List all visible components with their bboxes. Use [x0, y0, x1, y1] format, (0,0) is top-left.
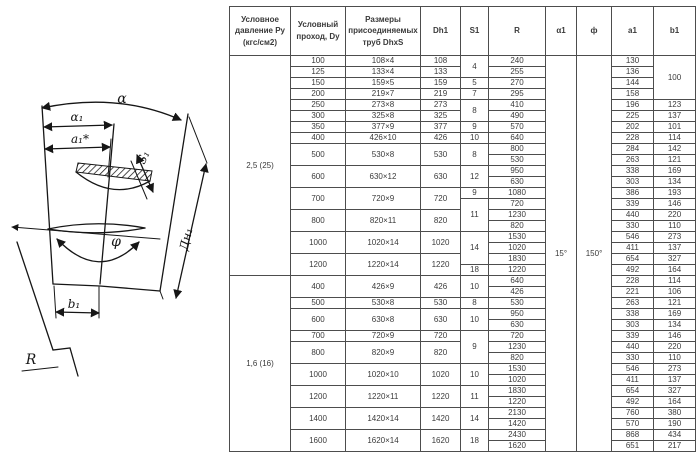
table-row: 16001620×141620182430868434	[230, 430, 696, 441]
table-cell: 1220	[421, 386, 461, 408]
table-cell: 9	[461, 331, 489, 364]
column-header: α1	[546, 7, 577, 56]
table-row: 500530×85308530263121	[230, 298, 696, 309]
table-cell: 630	[421, 309, 461, 331]
table-cell: 1020×10	[346, 364, 421, 386]
table-cell: 8	[461, 298, 489, 309]
table-row: 600630×863010950338169	[230, 309, 696, 320]
table-cell: 1000	[291, 232, 346, 254]
table-row: 600630×1263012950338169	[230, 166, 696, 177]
pipe-bend-diagram: α α₁ a₁* S₁ Дн₁ φ b₁ R	[0, 0, 228, 469]
table-row: 12001220×111220111830654327	[230, 386, 696, 397]
table-cell: 410	[489, 100, 546, 111]
table-cell: 5	[461, 78, 489, 89]
table-cell: 377×9	[346, 122, 421, 133]
table-cell: 202	[612, 122, 654, 133]
b1-dimension-line	[56, 312, 99, 313]
table-cell: 110	[654, 221, 696, 232]
column-header: Dh1	[421, 7, 461, 56]
table-cell: 121	[654, 298, 696, 309]
table-cell: 11	[461, 199, 489, 232]
table-row: 10001020×101020101530546273	[230, 364, 696, 375]
table-row: 150159×51595270144	[230, 78, 696, 89]
table-cell: 1230	[489, 342, 546, 353]
table-cell: 11	[461, 386, 489, 408]
table-cell: 133	[421, 67, 461, 78]
column-header: Размеры присоединяемых труб DhxS	[346, 7, 421, 56]
table-cell: 492	[612, 265, 654, 276]
table-cell: 350	[291, 122, 346, 133]
a1-star-label: a₁*	[71, 132, 89, 146]
table-cell: 820	[421, 210, 461, 232]
table-cell: 123	[654, 100, 696, 111]
table-cell: 250	[291, 100, 346, 111]
table-cell: 1020	[421, 364, 461, 386]
document-page: α α₁ a₁* S₁ Дн₁ φ b₁ R Условное давление…	[0, 0, 700, 469]
table-cell: 146	[654, 331, 696, 342]
table-cell: 426×9	[346, 276, 421, 298]
table-cell: 530	[421, 298, 461, 309]
table-cell: 1020	[489, 243, 546, 254]
table-cell: 1830	[489, 386, 546, 397]
table-cell: 18	[461, 430, 489, 452]
table-cell: 125	[291, 67, 346, 78]
table-cell: 219×7	[346, 89, 421, 100]
alpha1-dimension-line	[44, 125, 112, 127]
table-cell: 9	[461, 188, 489, 199]
phi-label: φ	[111, 234, 121, 250]
table-cell: 228	[612, 133, 654, 144]
table-cell: 10	[461, 133, 489, 144]
table-cell: 7	[461, 89, 489, 100]
table-cell: 8	[461, 144, 489, 166]
table-cell: 492	[612, 397, 654, 408]
table-cell: 640	[489, 276, 546, 287]
table-cell: 1220	[489, 265, 546, 276]
table-cell: 630	[489, 177, 546, 188]
table-cell: 1420	[421, 408, 461, 430]
table-cell: 327	[654, 254, 696, 265]
table-cell: 100	[654, 56, 696, 100]
table-cell: 273	[654, 364, 696, 375]
table-cell: 164	[654, 265, 696, 276]
table-cell: 263	[612, 298, 654, 309]
table-cell: 303	[612, 320, 654, 331]
bottom-face-arc-top	[48, 224, 145, 229]
table-cell: 134	[654, 320, 696, 331]
table-cell: 1020×14	[346, 232, 421, 254]
table-cell: 1420×14	[346, 408, 421, 430]
table-cell: 2430	[489, 430, 546, 441]
table-cell: 330	[612, 353, 654, 364]
table-cell: 2,5 (25)	[230, 56, 291, 276]
table-cell: 1220	[421, 254, 461, 276]
table-cell: 240	[489, 56, 546, 67]
table-cell: 1620×14	[346, 430, 421, 452]
table-cell: 490	[489, 111, 546, 122]
table-cell: 300	[291, 111, 346, 122]
r-label: R	[25, 352, 37, 368]
table-cell: 190	[654, 419, 696, 430]
table-cell: 14	[461, 408, 489, 430]
table-cell: 720×9	[346, 331, 421, 342]
table-cell: 8	[461, 100, 489, 122]
table-cell: 142	[654, 144, 696, 155]
table-cell: 400	[291, 276, 346, 298]
table-row: 200219×72197295158	[230, 89, 696, 100]
table-cell: 720	[489, 199, 546, 210]
table-cell: 101	[654, 122, 696, 133]
table-cell: 530×8	[346, 298, 421, 309]
table-row: 400426×1042610640228114	[230, 133, 696, 144]
table-cell: 339	[612, 331, 654, 342]
table-cell: 169	[654, 166, 696, 177]
table-cell: 654	[612, 386, 654, 397]
table-cell: 159	[421, 78, 461, 89]
table-cell: 700	[291, 188, 346, 210]
alpha1-label: α₁	[71, 110, 84, 124]
table-cell: 570	[612, 419, 654, 430]
table-cell: 1200	[291, 386, 346, 408]
table-cell: 196	[612, 100, 654, 111]
table-cell: 114	[654, 276, 696, 287]
table-cell: 630×8	[346, 309, 421, 331]
table-cell: 220	[654, 342, 696, 353]
table-cell: 651	[612, 441, 654, 452]
table-cell: 760	[612, 408, 654, 419]
table-cell: 400	[291, 133, 346, 144]
table-cell: 1530	[489, 232, 546, 243]
table-cell: 325×8	[346, 111, 421, 122]
table-cell: 330	[612, 221, 654, 232]
table-cell: 146	[654, 199, 696, 210]
table-cell: 10	[461, 364, 489, 386]
table-cell: 144	[612, 78, 654, 89]
table-cell: 500	[291, 298, 346, 309]
b1-label: b₁	[68, 297, 81, 311]
dn1-extension-line	[189, 117, 207, 163]
table-cell: 820	[421, 342, 461, 364]
table-cell: 18	[461, 265, 489, 276]
table-cell: 950	[489, 166, 546, 177]
weld-seam-hatch	[76, 163, 152, 181]
table-cell: 530×8	[346, 144, 421, 166]
table-cell: 325	[421, 111, 461, 122]
table-cell: 137	[654, 111, 696, 122]
table-row: 2,5 (25)100108×4108424015°150°130100	[230, 56, 696, 67]
table-cell: 255	[489, 67, 546, 78]
table-cell: 158	[612, 89, 654, 100]
table-panel: Условное давление Ру (кгс/см2)Условный п…	[229, 6, 695, 452]
table-cell: 2130	[489, 408, 546, 419]
table-cell: 820	[489, 353, 546, 364]
table-cell: 1400	[291, 408, 346, 430]
table-cell: 284	[612, 144, 654, 155]
table-cell: 137	[654, 375, 696, 386]
table-cell: 200	[291, 89, 346, 100]
table-cell: 600	[291, 166, 346, 188]
table-cell: 1530	[489, 364, 546, 375]
table-cell: 130	[612, 56, 654, 67]
table-cell: 219	[421, 89, 461, 100]
dimensions-table: Условное давление Ру (кгс/см2)Условный п…	[229, 6, 696, 452]
diagram-panel: α α₁ a₁* S₁ Дн₁ φ b₁ R	[0, 0, 228, 469]
table-row: 14001420×141420142130760380	[230, 408, 696, 419]
table-cell: 820×9	[346, 342, 421, 364]
s1-label: S₁	[134, 148, 152, 166]
table-row: 1,6 (16)400426×942610640228114	[230, 276, 696, 287]
table-cell: 380	[654, 408, 696, 419]
table-cell: 800	[291, 342, 346, 364]
table-cell: 106	[654, 287, 696, 298]
table-cell: 500	[291, 144, 346, 166]
table-cell: 530	[489, 155, 546, 166]
sector-left-edge	[42, 106, 53, 284]
table-cell: 114	[654, 133, 696, 144]
table-cell: 220	[654, 210, 696, 221]
table-row: 700720×97209720339146	[230, 331, 696, 342]
column-header: a1	[612, 7, 654, 56]
table-cell: 1220	[489, 397, 546, 408]
table-cell: 295	[489, 89, 546, 100]
table-cell: 546	[612, 232, 654, 243]
table-cell: 530	[489, 298, 546, 309]
column-header: b1	[654, 7, 696, 56]
table-row: 250273×82738410196123	[230, 100, 696, 111]
table-cell: 700	[291, 331, 346, 342]
table-cell: 411	[612, 243, 654, 254]
sector-bottom-edge	[53, 284, 160, 291]
table-cell: 270	[489, 78, 546, 89]
bottom-face-arc-bottom	[48, 228, 145, 233]
table-cell: 820	[489, 221, 546, 232]
column-header: Условное давление Ру (кгс/см2)	[230, 7, 291, 56]
table-cell: 150°	[577, 56, 612, 452]
table-cell: 640	[489, 133, 546, 144]
table-row: 700720×972091080386193	[230, 188, 696, 199]
table-cell: 169	[654, 309, 696, 320]
table-cell: 1000	[291, 364, 346, 386]
table-cell: 14	[461, 232, 489, 265]
table-cell: 12	[461, 166, 489, 188]
table-cell: 720	[421, 331, 461, 342]
column-header: R	[489, 7, 546, 56]
table-cell: 630×12	[346, 166, 421, 188]
table-cell: 600	[291, 309, 346, 331]
table-cell: 9	[461, 122, 489, 133]
table-cell: 164	[654, 397, 696, 408]
table-cell: 217	[654, 441, 696, 452]
table-cell: 1620	[421, 430, 461, 452]
table-cell: 1080	[489, 188, 546, 199]
table-cell: 4	[461, 56, 489, 78]
table-cell: 440	[612, 342, 654, 353]
column-header: S1	[461, 7, 489, 56]
table-row: 500530×85308800284142	[230, 144, 696, 155]
table-cell: 546	[612, 364, 654, 375]
table-cell: 134	[654, 177, 696, 188]
table-cell: 1,6 (16)	[230, 276, 291, 452]
table-cell: 150	[291, 78, 346, 89]
table-cell: 1020	[489, 375, 546, 386]
table-cell: 1420	[489, 419, 546, 430]
table-cell: 630	[421, 166, 461, 188]
bottom-edge-tick	[160, 291, 163, 299]
table-cell: 136	[612, 67, 654, 78]
table-cell: 1220×11	[346, 386, 421, 408]
table-cell: 15°	[546, 56, 577, 452]
table-cell: 377	[421, 122, 461, 133]
table-cell: 108×4	[346, 56, 421, 67]
table-cell: 426	[489, 287, 546, 298]
table-cell: 868	[612, 430, 654, 441]
table-cell: 108	[421, 56, 461, 67]
table-cell: 1020	[421, 232, 461, 254]
table-cell: 221	[612, 287, 654, 298]
table-cell: 10	[461, 276, 489, 298]
table-row: 350377×93779570202101	[230, 122, 696, 133]
table-cell: 273	[421, 100, 461, 111]
table-cell: 426	[421, 276, 461, 298]
table-cell: 303	[612, 177, 654, 188]
table-cell: 1200	[291, 254, 346, 276]
table-cell: 338	[612, 166, 654, 177]
table-cell: 720×9	[346, 188, 421, 210]
alpha-dimension-line	[42, 102, 181, 120]
table-cell: 1230	[489, 210, 546, 221]
table-cell: 570	[489, 122, 546, 133]
table-cell: 159×5	[346, 78, 421, 89]
table-cell: 327	[654, 386, 696, 397]
table-cell: 110	[654, 353, 696, 364]
table-cell: 800	[489, 144, 546, 155]
table-cell: 820×11	[346, 210, 421, 232]
table-cell: 630	[489, 320, 546, 331]
table-cell: 1600	[291, 430, 346, 452]
table-cell: 338	[612, 309, 654, 320]
table-cell: 137	[654, 243, 696, 254]
table-cell: 339	[612, 199, 654, 210]
table-cell: 273×8	[346, 100, 421, 111]
table-row: 10001020×141020141530546273	[230, 232, 696, 243]
table-cell: 193	[654, 188, 696, 199]
table-cell: 100	[291, 56, 346, 67]
table-cell: 411	[612, 375, 654, 386]
table-cell: 386	[612, 188, 654, 199]
table-cell: 1830	[489, 254, 546, 265]
table-cell: 530	[421, 144, 461, 166]
table-cell: 440	[612, 210, 654, 221]
table-cell: 1620	[489, 441, 546, 452]
table-cell: 273	[654, 232, 696, 243]
table-cell: 225	[612, 111, 654, 122]
table-cell: 426	[421, 133, 461, 144]
table-cell: 263	[612, 155, 654, 166]
table-cell: 720	[421, 188, 461, 210]
a1-dimension-line	[45, 147, 110, 149]
phi-angle-arc	[57, 239, 139, 262]
alpha-label: α	[117, 91, 127, 107]
table-cell: 10	[461, 309, 489, 331]
table-cell: 228	[612, 276, 654, 287]
table-cell: 800	[291, 210, 346, 232]
table-cell: 434	[654, 430, 696, 441]
table-cell: 950	[489, 309, 546, 320]
table-cell: 1220×14	[346, 254, 421, 276]
table-cell: 654	[612, 254, 654, 265]
column-header: ф	[577, 7, 612, 56]
table-cell: 133×4	[346, 67, 421, 78]
b1-extension-left	[54, 286, 56, 318]
table-cell: 121	[654, 155, 696, 166]
table-cell: 426×10	[346, 133, 421, 144]
dn1-label: Дн₁	[177, 227, 196, 253]
table-cell: 720	[489, 331, 546, 342]
column-header: Условный проход, Dy	[291, 7, 346, 56]
